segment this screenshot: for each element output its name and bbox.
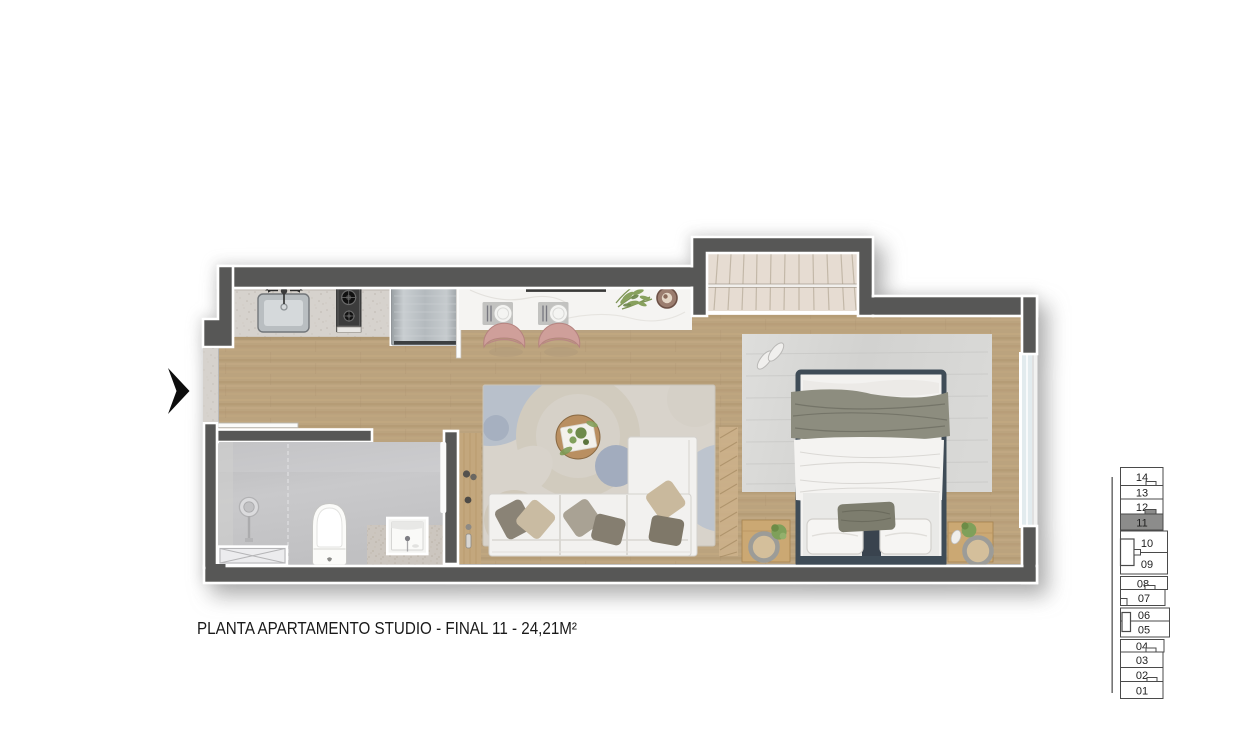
svg-text:01: 01 [1136, 686, 1148, 698]
svg-text:09: 09 [1141, 559, 1153, 571]
svg-text:07: 07 [1138, 593, 1150, 605]
svg-text:05: 05 [1138, 625, 1150, 637]
svg-text:13: 13 [1136, 488, 1148, 500]
svg-text:03: 03 [1136, 655, 1148, 667]
svg-text:PLANTA APARTAMENTO STUDIO - FI: PLANTA APARTAMENTO STUDIO - FINAL 11 - 2… [197, 618, 577, 638]
svg-text:10: 10 [1141, 538, 1153, 550]
svg-text:14: 14 [1136, 472, 1148, 484]
svg-text:06: 06 [1138, 610, 1150, 622]
svg-text:02: 02 [1136, 670, 1148, 682]
svg-text:11: 11 [1136, 518, 1147, 530]
